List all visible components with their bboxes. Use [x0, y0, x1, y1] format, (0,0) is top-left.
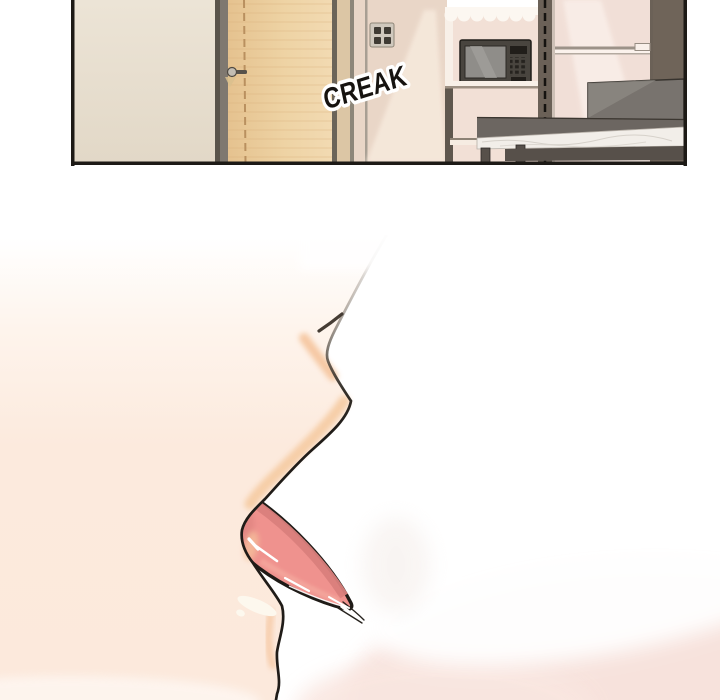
shelf-board-upper-shadow: [445, 86, 538, 89]
table: [477, 117, 684, 163]
wall-left: [71, 0, 217, 163]
microwave-keypad: [510, 57, 527, 76]
valance-scallop: [458, 9, 471, 22]
fridge-handle: [635, 44, 650, 51]
valance-scallop: [497, 9, 510, 22]
door-frame-left-dark: [215, 0, 220, 163]
shelf-post-left-lower: [445, 85, 453, 163]
panel-border-bottom: [71, 162, 687, 166]
switch-button: [374, 37, 381, 44]
door-grain: [228, 0, 332, 163]
soft-shadow-near-tongue: [362, 517, 430, 613]
face-illustration: [0, 166, 720, 700]
panel-border-right: [684, 0, 688, 166]
microwave-display: [510, 46, 527, 54]
panel-border-left: [71, 0, 75, 166]
valance-scallop: [445, 9, 458, 22]
shelf-post-left: [445, 12, 453, 85]
switch-button: [384, 27, 391, 34]
comic-panel: CREAK: [71, 0, 687, 166]
valance-scallop: [510, 9, 523, 22]
light-switch: [370, 23, 394, 47]
door-knob: [228, 68, 237, 77]
switch-button: [384, 37, 391, 44]
microwave: [460, 40, 531, 83]
webtoon-page: CREAK: [0, 0, 720, 700]
microwave-door-button: [511, 77, 526, 81]
door-frame-left-gray: [220, 0, 228, 163]
door-knob-stem: [236, 70, 247, 74]
switch-button: [374, 27, 381, 34]
valance-scallop: [471, 9, 484, 22]
valance-scallop: [523, 9, 536, 22]
outline-top-fade: [300, 225, 420, 270]
fridge-door-seam-bottom: [555, 53, 650, 55]
valance-scallop: [484, 9, 497, 22]
table-leg: [481, 148, 490, 163]
